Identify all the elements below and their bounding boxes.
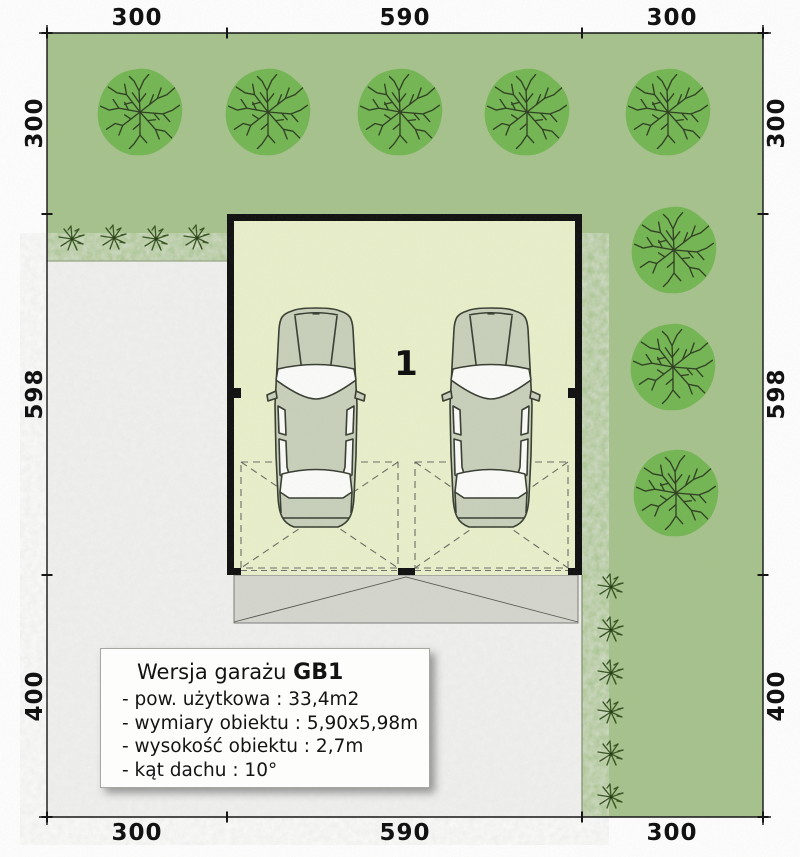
dim-label-right-bottom: 400: [764, 670, 790, 721]
info-box-title-prefix: Wersja garażu: [137, 660, 286, 684]
dim-label-left-bottom: 400: [22, 670, 48, 721]
site-plan: 300 590 300 300 590 300 300 598 400 300 …: [0, 0, 800, 857]
info-box-title-code: GB1: [293, 660, 343, 685]
info-box: Wersja garażu GB1 - pow. użytkowa : 33,4…: [100, 648, 430, 788]
info-box-title: Wersja garażu GB1: [137, 660, 429, 685]
info-item-area: - pow. użytkowa : 33,4m2: [122, 688, 429, 712]
dim-label-left-top: 300: [22, 97, 48, 148]
dim-label-bottom-left: 300: [111, 820, 162, 846]
garage-unit-number: 1: [394, 344, 418, 384]
info-item-height: - wysokość obiektu : 2,7m: [122, 735, 429, 759]
dim-label-top-center: 590: [379, 5, 430, 31]
dim-label-left-middle: 598: [22, 368, 48, 419]
dim-label-bottom-center: 590: [379, 820, 430, 846]
dim-label-bottom-right: 300: [646, 820, 697, 846]
dim-label-top-right: 300: [646, 5, 697, 31]
info-item-dimensions: - wymiary obiektu : 5,90x5,98m: [122, 712, 429, 736]
dim-label-right-top: 300: [764, 97, 790, 148]
dim-label-top-left: 300: [111, 5, 162, 31]
info-item-roof-angle: - kąt dachu : 10°: [122, 759, 429, 783]
dim-label-right-middle: 598: [764, 368, 790, 419]
